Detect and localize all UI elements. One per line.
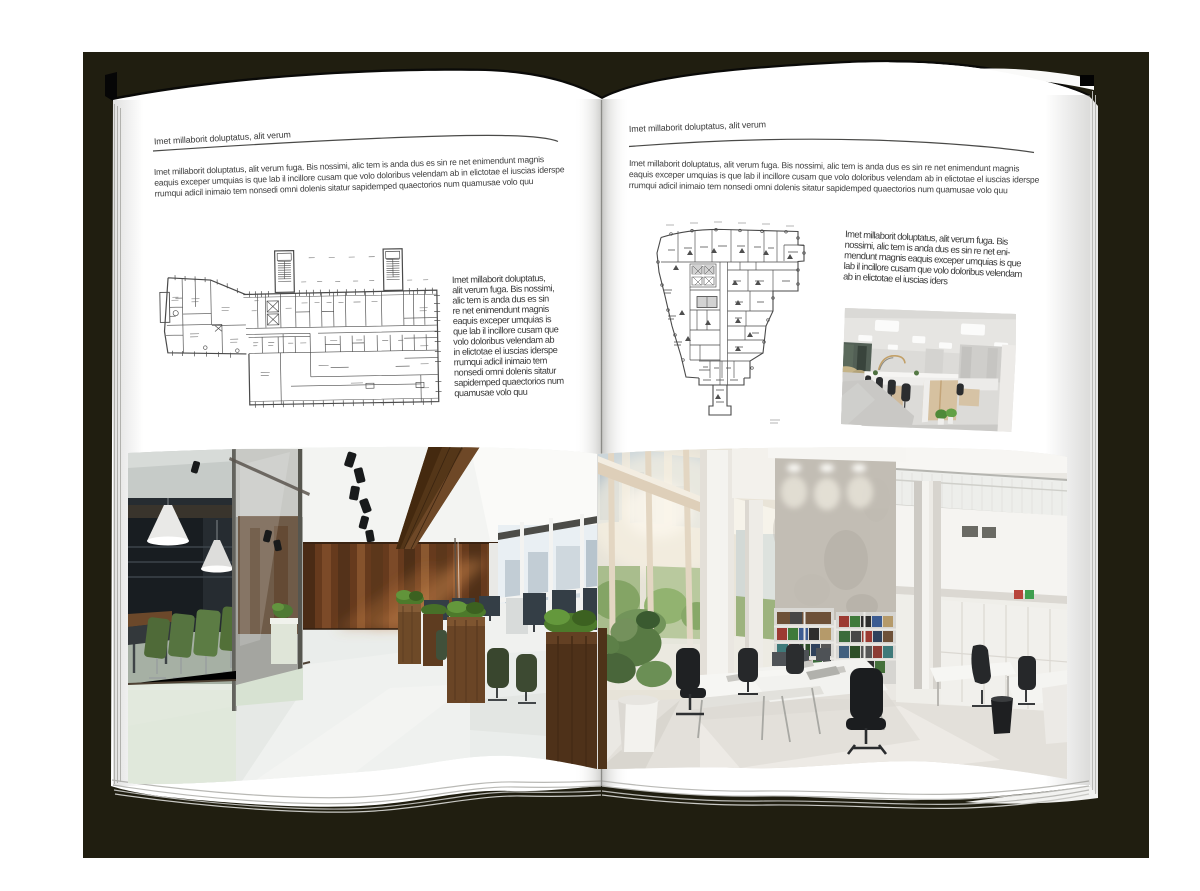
svg-text:quamusae volo quu: quamusae volo quu: [454, 387, 528, 399]
